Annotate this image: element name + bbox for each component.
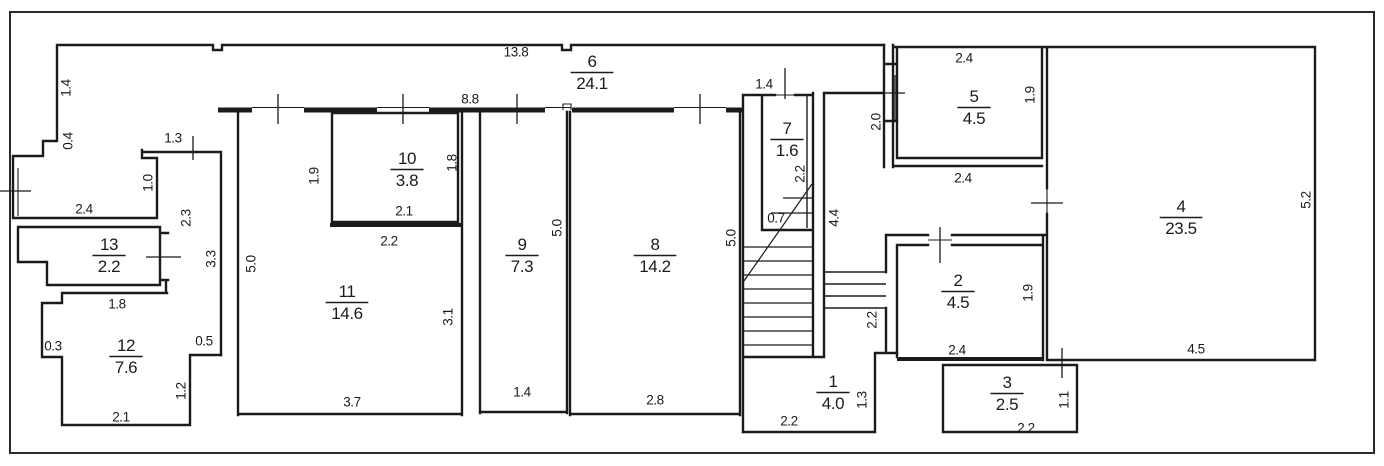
dimension-label: 2.4 — [948, 343, 966, 358]
dimension-label: 5.0 — [550, 219, 565, 237]
dimension-label: 1.9 — [307, 167, 322, 185]
dimension-label: 3.7 — [343, 395, 361, 410]
room-label-13: 132.2 — [92, 235, 125, 276]
dimension-label: 5.2 — [1299, 191, 1314, 209]
room-number: 2 — [953, 271, 962, 290]
room-label-8: 814.2 — [634, 235, 677, 276]
dimension-label: 1.9 — [1023, 86, 1038, 104]
dimension-label: 1.9 — [1021, 284, 1036, 302]
room-area: 7.6 — [115, 358, 137, 377]
room-number: 1 — [828, 372, 837, 391]
room-label-12: 127.6 — [109, 336, 142, 377]
labels-layer: 14.024.532.5423.554.5624.171.6814.297.31… — [44, 45, 1313, 436]
room-area: 1.6 — [776, 141, 798, 160]
dimension-label: 2.2 — [793, 165, 808, 183]
dimension-label: 1.2 — [174, 382, 189, 400]
dimension-label: 2.2 — [780, 414, 798, 429]
dimension-label: 8.8 — [461, 92, 479, 107]
room-label-4: 423.5 — [1160, 197, 1203, 238]
door-ticks — [0, 68, 1063, 378]
dimension-label: 2.3 — [179, 209, 194, 227]
dimension-label: 2.4 — [955, 51, 973, 66]
dimension-label: 5.0 — [724, 229, 739, 247]
room-area: 4.0 — [822, 394, 844, 413]
room-label-5: 54.5 — [957, 87, 990, 128]
dimension-label: 1.8 — [445, 154, 460, 172]
dimension-label: 0.7 — [767, 211, 785, 226]
room-number: 7 — [782, 119, 791, 138]
dimension-label: 0.3 — [44, 339, 62, 354]
dimension-label: 2.1 — [112, 410, 130, 425]
dimension-label: 13.8 — [504, 45, 529, 60]
dimension-label: 0.4 — [61, 131, 76, 149]
landing-steps — [824, 272, 886, 308]
room-label-10: 103.8 — [390, 149, 423, 190]
room-area: 4.5 — [947, 293, 969, 312]
room-number: 4 — [1176, 197, 1185, 216]
floor-plan-document: 14.024.532.5423.554.5624.171.6814.297.31… — [0, 0, 1384, 466]
dimension-label: 4.5 — [1187, 342, 1205, 357]
room-area: 7.3 — [511, 257, 533, 276]
dimension-label: 2.2 — [380, 234, 398, 249]
stair-direction-line — [744, 184, 812, 281]
room-label-1: 14.0 — [816, 372, 849, 413]
dimension-label: 1.1 — [1057, 391, 1072, 409]
room-label-3: 32.5 — [990, 373, 1023, 414]
room-area: 24.1 — [576, 74, 608, 93]
room-label-6: 624.1 — [571, 52, 614, 93]
room-area: 14.2 — [639, 257, 671, 276]
room-number: 8 — [650, 235, 659, 254]
shaft-walls — [743, 45, 897, 432]
room-label-7: 71.6 — [770, 119, 803, 160]
dimension-label: 3.1 — [441, 308, 456, 326]
floor-plan-canvas: 14.024.532.5423.554.5624.171.6814.297.31… — [0, 0, 1384, 466]
room-number: 6 — [587, 52, 596, 71]
room-area: 23.5 — [1165, 219, 1197, 238]
dimension-label: 1.4 — [513, 385, 531, 400]
dimension-label: 1.4 — [755, 77, 773, 92]
dimension-label: 1.3 — [855, 391, 870, 409]
dimension-label: 1.0 — [141, 174, 156, 192]
room-number: 3 — [1002, 373, 1011, 392]
dimension-label: 1.4 — [59, 78, 74, 96]
room-area: 2.5 — [996, 395, 1018, 414]
room-number: 11 — [339, 282, 356, 301]
room-area: 14.6 — [331, 304, 363, 323]
dimension-label: 0.5 — [195, 334, 213, 349]
dimension-label: 4.4 — [827, 208, 842, 226]
dimension-label: 1.8 — [108, 297, 126, 312]
room-area: 2.2 — [98, 257, 120, 276]
dimension-label: 2.8 — [646, 393, 664, 408]
dimension-label: 3.3 — [204, 250, 219, 268]
dimension-label: 2.0 — [869, 113, 884, 131]
room-area: 4.5 — [963, 109, 985, 128]
dimension-label: 1.3 — [164, 131, 182, 146]
dimension-label: 5.0 — [244, 255, 259, 273]
room-number: 13 — [100, 235, 118, 254]
dimension-label: 2.4 — [75, 202, 93, 217]
room-number: 9 — [517, 235, 526, 254]
room-area: 3.8 — [396, 171, 418, 190]
dimension-label: 2.4 — [954, 171, 972, 186]
room-number: 5 — [969, 87, 978, 106]
dimension-label: 2.2 — [1017, 421, 1035, 436]
room-number: 12 — [117, 336, 135, 355]
room-label-2: 24.5 — [941, 271, 974, 312]
dimension-label: 2.1 — [395, 204, 413, 219]
dimension-label: 2.2 — [865, 311, 880, 329]
room-number: 10 — [398, 149, 416, 168]
room-label-9: 97.3 — [505, 235, 538, 276]
room-label-11: 1114.6 — [326, 282, 369, 323]
